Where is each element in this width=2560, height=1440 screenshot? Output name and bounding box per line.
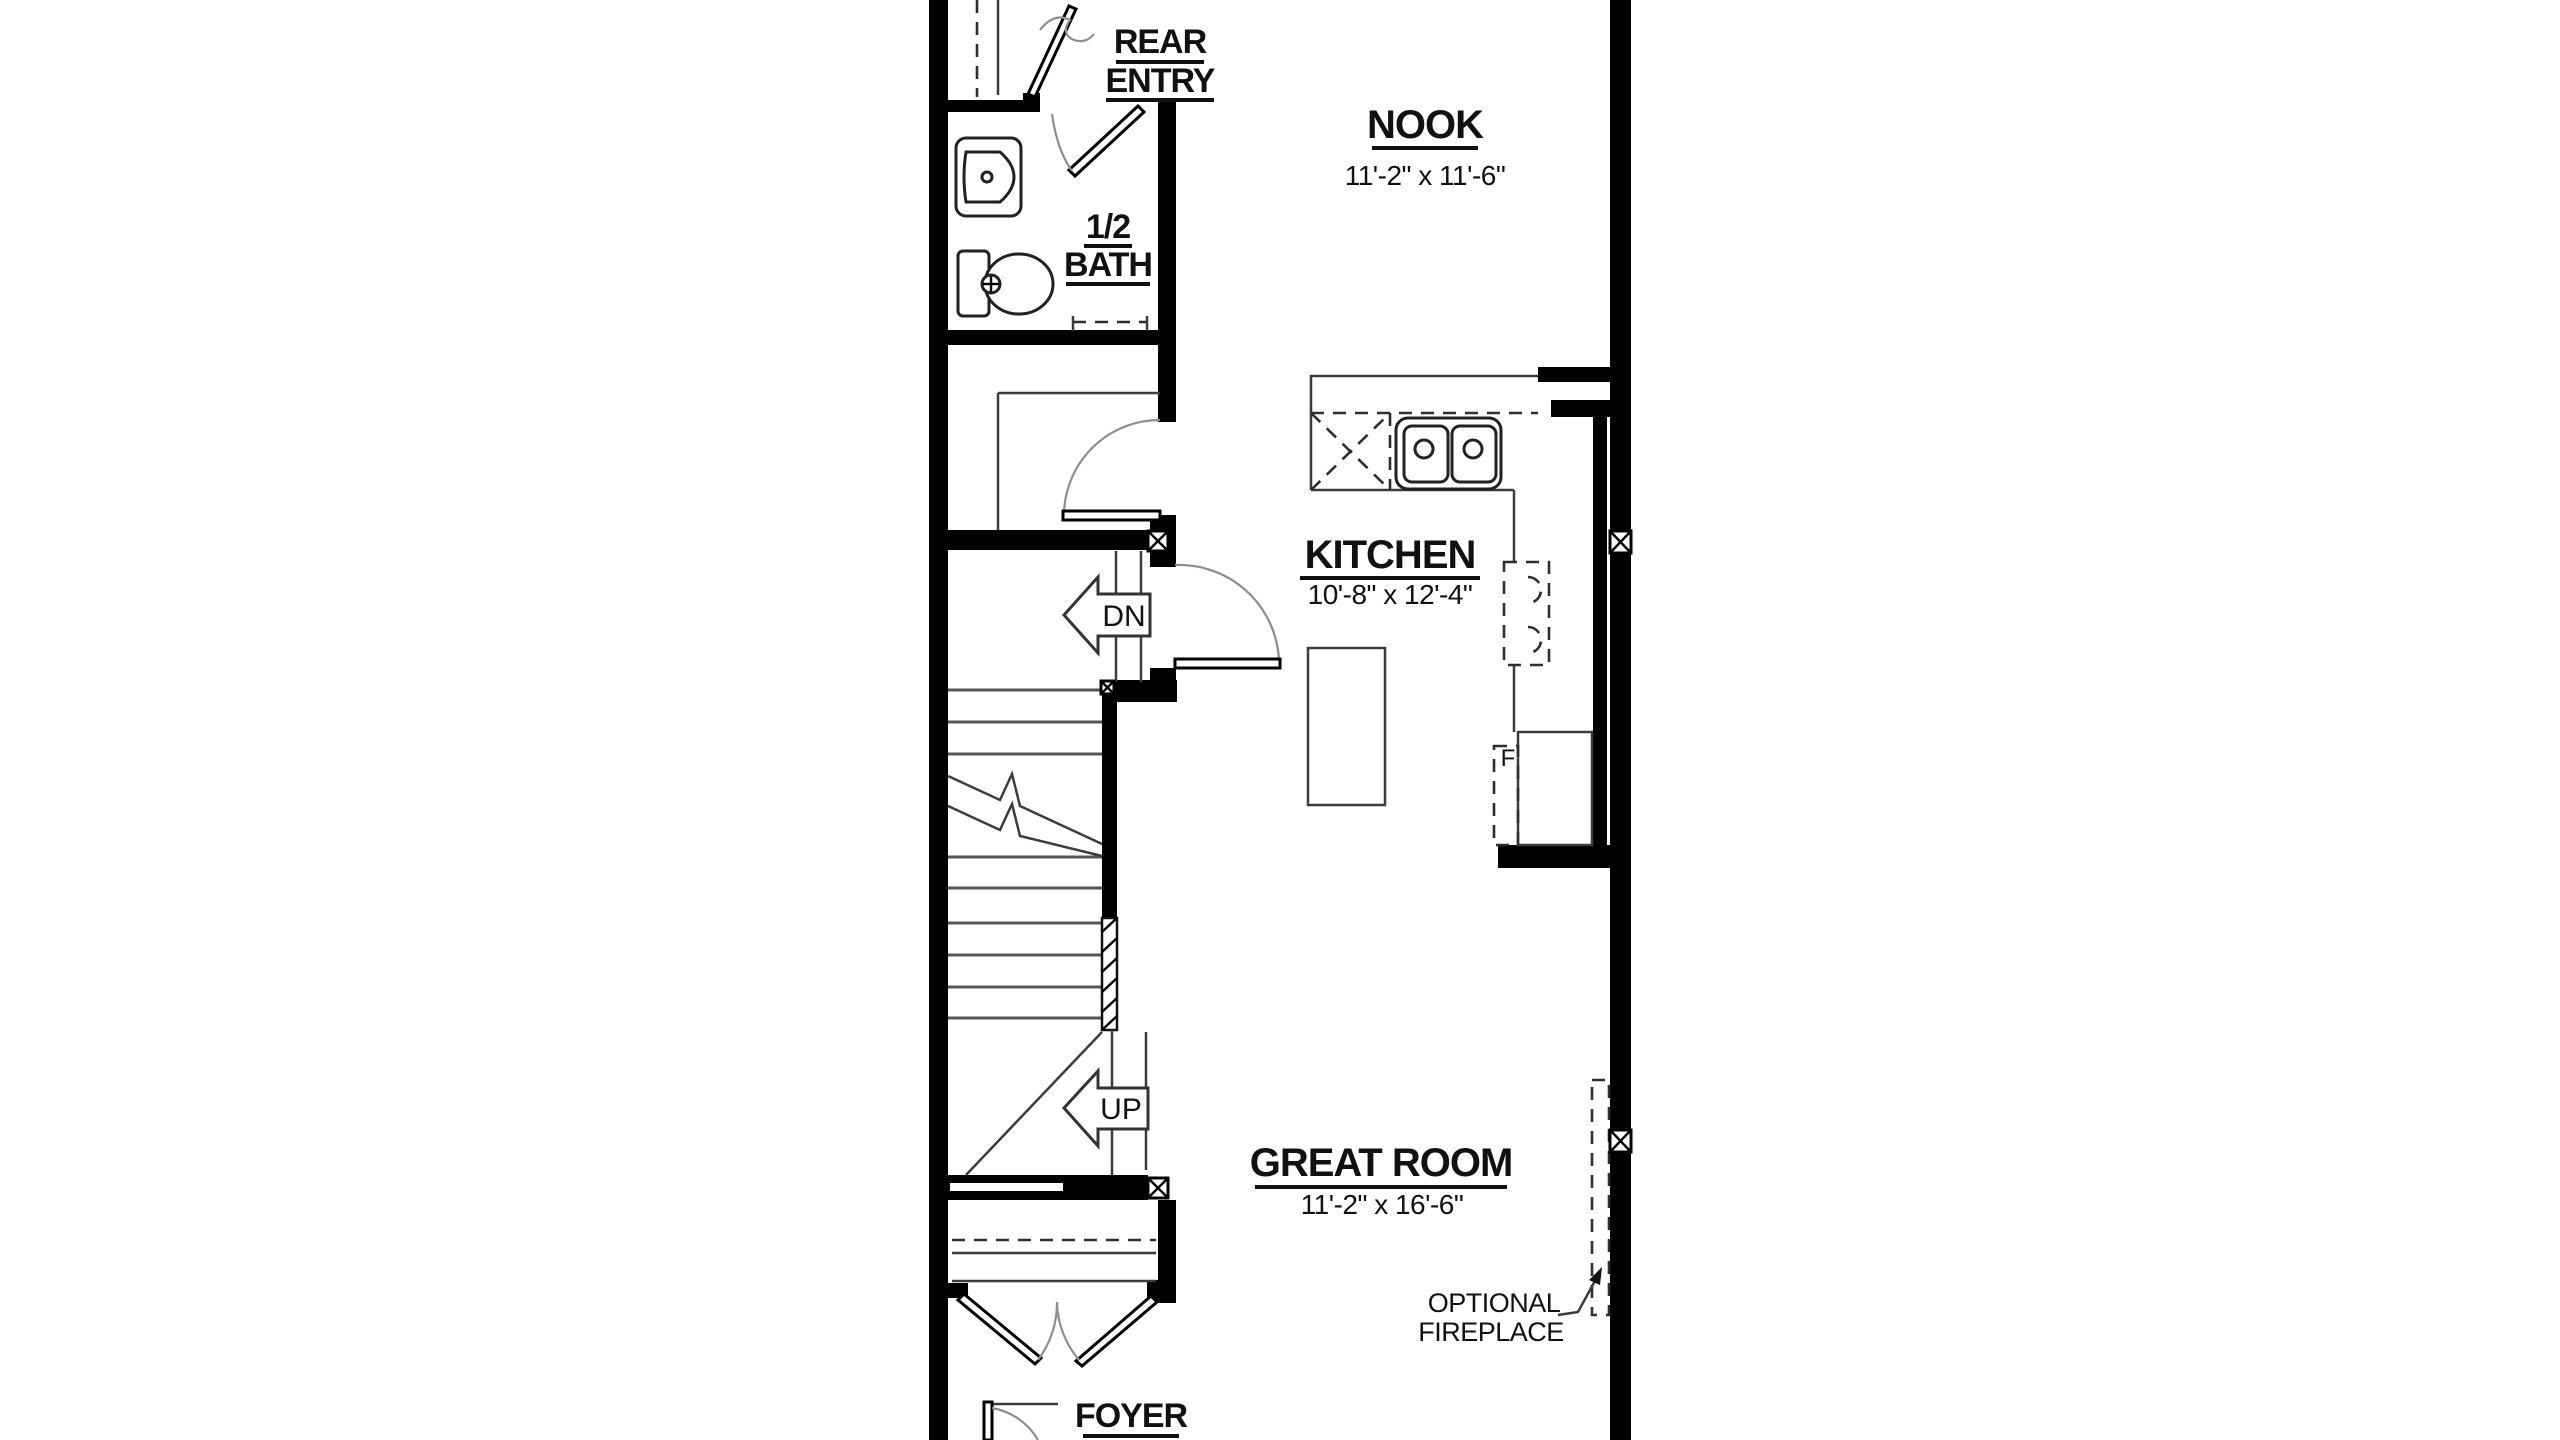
floor-plan-page: DN UP: [0, 0, 2560, 1440]
corner-cabinet: [1311, 413, 1390, 490]
kitchen-notch-bar: [1551, 400, 1610, 417]
window-marker-great-room: [1610, 1130, 1631, 1152]
closet-right-wall: [1158, 1200, 1176, 1285]
optional-fireplace: [1558, 1080, 1609, 1315]
fireplace-label-line2: FIREPLACE: [1418, 1317, 1564, 1347]
hatched-wall-section: [1102, 918, 1117, 1030]
foyer-label: FOYER: [1075, 1397, 1188, 1436]
half-bath-label-line1: 1/2: [1086, 208, 1130, 246]
closet-double-doors: [958, 1294, 1157, 1366]
post-marker-great-room: [1148, 1178, 1168, 1198]
range: [1504, 562, 1549, 665]
kitchen-sink: [1396, 418, 1501, 489]
kitchen-label: KITCHEN 10'-8" x 12'-4": [1300, 533, 1480, 610]
floor-plan-drawing: DN UP: [0, 0, 2560, 1440]
hall-door: [1063, 420, 1160, 520]
post-marker-stair: [1101, 681, 1114, 694]
refrigerator: F: [1494, 732, 1592, 845]
up-arrow-label: UP: [1100, 1093, 1142, 1126]
stair-door: [1175, 565, 1280, 668]
rear-entry-door: [1028, 6, 1094, 97]
stair-door-jamb: [1150, 668, 1176, 682]
rear-entry-label-line2: ENTRY: [1106, 62, 1216, 100]
toilet: [958, 251, 1053, 316]
kitchen-title: KITCHEN: [1305, 533, 1476, 577]
bath-south-wall: [948, 330, 1176, 345]
up-arrow: UP: [1064, 1071, 1148, 1146]
window-marker-kitchen: [1610, 531, 1631, 553]
optional-fireplace-label: OPTIONAL FIREPLACE: [1418, 1288, 1564, 1347]
fireplace-label-line1: OPTIONAL: [1428, 1288, 1561, 1318]
kitchen-fixtures: F: [1308, 376, 1592, 845]
stair-break-line: [948, 804, 1102, 856]
left-exterior-wall: [929, 0, 948, 1440]
bath-right-wall: [1158, 100, 1176, 422]
rear-entry-label: REAR ENTRY: [1106, 23, 1216, 100]
rear-entry-wall: [948, 100, 1023, 112]
kitchen-right-inner-wall: [1593, 417, 1607, 845]
nook-title: NOOK: [1367, 103, 1484, 147]
kitchen-dims: 10'-8" x 12'-4": [1308, 579, 1473, 610]
nook-label: NOOK 11'-2" x 11'-6": [1345, 103, 1506, 191]
bath-threshold: [1073, 316, 1147, 331]
foyer-closet: [952, 1240, 1156, 1281]
stair-break-line: [948, 774, 1102, 844]
nook-dims: 11'-2" x 11'-6": [1345, 160, 1506, 191]
dn-arrow-label: DN: [1102, 600, 1145, 633]
post-marker-hall: [1148, 531, 1168, 551]
foyer-title: FOYER: [1075, 1397, 1188, 1435]
fireplace-leader-line: [1558, 1279, 1596, 1315]
room-labels: REAR ENTRY NOOK 11'-2" x 11'-6" 1/2 BATH…: [1064, 23, 1564, 1436]
vanity-sink: [956, 138, 1021, 216]
great-room-label: GREAT ROOM 11'-2" x 16'-6": [1250, 1141, 1513, 1220]
walls: [929, 0, 1631, 1440]
right-exterior-wall: [1610, 0, 1631, 1440]
dn-arrow: DN: [1064, 577, 1150, 653]
great-room-dims: 11'-2" x 16'-6": [1301, 1189, 1464, 1220]
kitchen-south-wall: [1498, 845, 1610, 868]
great-room-title: GREAT ROOM: [1250, 1141, 1513, 1185]
stair-right-wall: [1102, 680, 1117, 920]
refrigerator-label: F: [1501, 745, 1516, 772]
foyer-entry-door: [984, 1402, 1058, 1440]
half-bath-label-line2: BATH: [1064, 246, 1152, 284]
bath-door: [1052, 106, 1144, 176]
kitchen-island: [1308, 648, 1385, 805]
kitchen-north-wall-bar: [1538, 367, 1610, 382]
hall-south-wall: [948, 530, 1150, 550]
rear-entry-label-line1: REAR: [1114, 23, 1207, 61]
wall-header-stripe: [950, 1183, 1063, 1191]
half-bath-label: 1/2 BATH: [1064, 208, 1152, 284]
